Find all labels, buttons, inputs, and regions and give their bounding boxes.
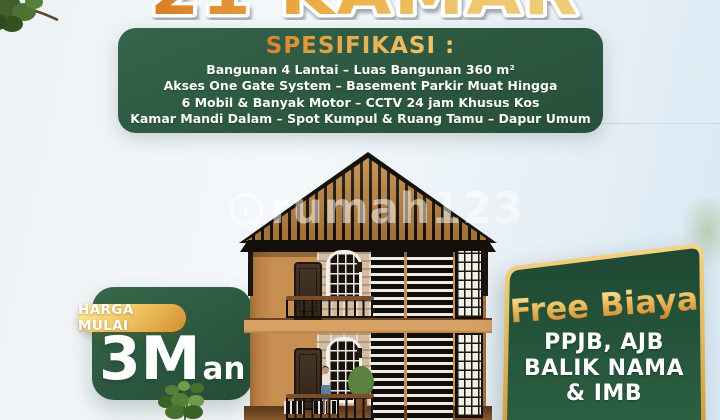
- balcony-rail-upper: [286, 296, 374, 318]
- promo-line: BALIK NAMA: [505, 356, 703, 382]
- door-upper: [294, 262, 322, 320]
- promo-line: PPJB, AJB: [505, 330, 703, 356]
- louver-panel-upper-a: [371, 252, 404, 318]
- watermark-logo-letter: r: [243, 200, 251, 219]
- horizon-line: [596, 123, 720, 124]
- grid-window-upper: [455, 249, 483, 319]
- watermark-logo-icon: r: [230, 193, 263, 226]
- arch-window-lower: [326, 337, 362, 403]
- vent-grid: [284, 401, 305, 414]
- brick-panel-upper: [317, 252, 371, 318]
- headline: 21 KAMAR: [115, 0, 625, 20]
- grid-window-lower: [455, 333, 483, 418]
- door-lower: [294, 348, 322, 410]
- poster-background: HARGA MULAI 3M an: [0, 0, 720, 420]
- wall-lamp-lower: [357, 348, 362, 358]
- louver-panel-lower-b: [407, 333, 453, 420]
- eave-shadow: [250, 252, 486, 257]
- ground-plant-icon: [150, 374, 220, 420]
- vent-grid: [312, 401, 339, 414]
- building-wall: [250, 252, 486, 420]
- roof-fascia: [240, 240, 496, 252]
- watermark: r rumah123: [230, 188, 524, 231]
- tree-foliage-icon: [0, 0, 62, 54]
- downspout-left: [248, 252, 253, 296]
- svg-text:21 KAMAR: 21 KAMAR: [150, 0, 580, 20]
- spec-line: Akses One Gate System – Basement Parkir …: [164, 78, 558, 94]
- spec-line: 6 Mobil & Banyak Motor – CCTV 24 jam Khu…: [182, 95, 540, 111]
- spec-box: SPESIFIKASI : Bangunan 4 Lantai – Luas B…: [118, 28, 603, 133]
- balcony-rail-lower: [286, 394, 374, 420]
- floor-band: [244, 318, 492, 333]
- headline-text: 21 KAMAR: [150, 0, 580, 20]
- balcony-plant: [348, 366, 374, 412]
- spec-line: Kamar Mandi Dalam – Spot Kumpul & Ruang …: [130, 111, 591, 127]
- brick-panel-lower: [317, 333, 371, 406]
- promo-line: & IMB: [505, 381, 703, 407]
- wall-lamp-upper: [357, 262, 362, 272]
- downspout-right: [483, 252, 488, 296]
- promo-heading: Free Biaya: [504, 279, 704, 331]
- promo-text: Free Biaya PPJB, AJB BALIK NAMA & IMB: [505, 286, 703, 407]
- spec-heading: SPESIFIKASI :: [266, 33, 455, 59]
- basement-band: [244, 406, 492, 420]
- spec-line: Bangunan 4 Lantai – Luas Bangunan 360 m²: [206, 62, 515, 78]
- arch-window-upper: [326, 250, 362, 300]
- louver-panel-lower-a: [371, 333, 404, 420]
- watermark-text: rumah123: [270, 188, 524, 231]
- louver-panel-upper-b: [407, 252, 453, 318]
- person-figure: [319, 366, 332, 414]
